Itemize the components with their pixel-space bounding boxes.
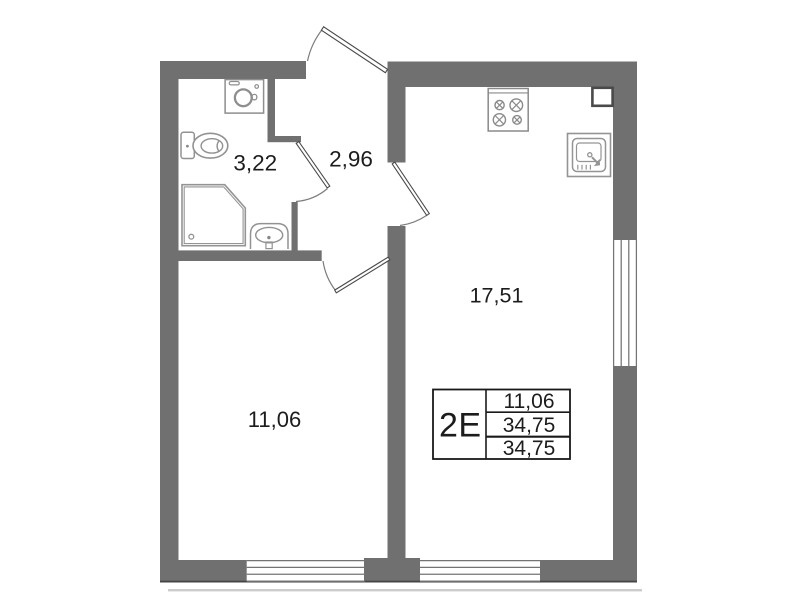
svg-text:11,06: 11,06 [248,407,301,432]
svg-text:2,96: 2,96 [329,146,373,171]
svg-text:17,51: 17,51 [470,283,524,307]
svg-text:11,06: 11,06 [504,390,555,413]
svg-text:2Е: 2Е [439,407,482,445]
svg-text:34,75: 34,75 [503,414,556,437]
svg-text:3,22: 3,22 [233,150,277,175]
svg-text:34,75: 34,75 [503,437,556,460]
